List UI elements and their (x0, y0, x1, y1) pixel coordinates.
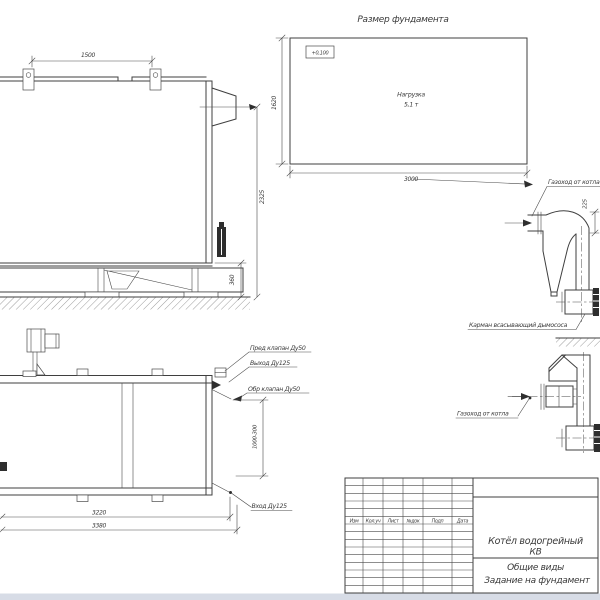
plan-lug-3 (77, 495, 88, 502)
leader-dot (529, 397, 532, 400)
boiler-plan-view: Пред клапан Ду50 Выход Ду125 Обр клапан … (0, 329, 311, 534)
duct-label: Газоход от котла (548, 179, 600, 186)
dim-body-length: 3220 (92, 510, 107, 517)
foundation-title: Размер фундамента (357, 15, 448, 25)
col-izm: Изм (350, 519, 360, 525)
outlet-marker (212, 381, 221, 390)
flue-duct-side-view: Газоход от котла 225 Карман всасывающий … (413, 179, 600, 347)
check-valve-arrow (233, 396, 242, 402)
dim-length-lines (0, 497, 240, 534)
lifting-lug-right (150, 69, 161, 90)
black-flange (593, 288, 599, 316)
burner-motor (45, 334, 59, 348)
plan-edges (0, 376, 212, 496)
col-koluch: Кол.уч (366, 519, 381, 525)
check-valve-leader (241, 393, 309, 397)
load-label: Нагрузка (397, 92, 425, 99)
doc-type-line2: Задание на фундамент (484, 576, 591, 586)
base-frame-supports (98, 268, 198, 292)
suction-pocket-outline (528, 211, 589, 296)
dim-frame-height: 360 (229, 274, 236, 285)
left-edge-fitting (0, 462, 7, 471)
bottom-black-flange (594, 424, 600, 452)
title-block-columns (363, 478, 452, 593)
plan-internal-lines (122, 383, 133, 488)
outlet-leader (229, 367, 297, 382)
axis-line (413, 179, 526, 184)
dim-nozzle-lines (233, 397, 268, 479)
plan-lug-4 (152, 495, 163, 502)
dim-lug-spacing: 1500 (81, 52, 96, 59)
product-name-line1: Котёл водогрейный (488, 536, 583, 547)
level-mark: +0,100 (312, 51, 329, 57)
boiler-drawing: 2325 1500 360 Размер фундамента +0,100 Н… (0, 0, 600, 600)
elbow-outline (549, 355, 590, 381)
flue-duct-front-view: Газоход от котла (456, 352, 600, 453)
check-valve-label: Обр клапан Ду50 (248, 385, 300, 393)
plan-lug-1 (77, 369, 88, 376)
dim-offset-lines (590, 209, 599, 236)
drawing-sheet: 2325 1500 360 Размер фундамента +0,100 Н… (0, 0, 600, 600)
duct-label-leader (532, 187, 600, 217)
pocket-label: Карман всасывающий дымососа (469, 322, 568, 329)
dim-overall-length: 3380 (92, 523, 107, 530)
col-data: Дата (456, 519, 469, 525)
col-podp: Подп (432, 519, 444, 525)
ground-hatch (0, 298, 250, 310)
drain-valve-cap (219, 222, 224, 227)
col-ndok: №док (406, 519, 420, 525)
dim-duct-offset: 225 (583, 198, 589, 208)
dim-foundation-depth: 1620 (271, 95, 278, 110)
title-block-rows (345, 486, 473, 586)
foot-plate-right (184, 292, 218, 297)
burner-bracket (37, 364, 45, 375)
lifting-lug-left (23, 69, 34, 90)
duct-ground-hatch (556, 339, 600, 347)
dim-foundation-width: 3000 (404, 176, 419, 183)
front-duct-label: Газоход от котла (457, 411, 509, 418)
foundation-plan: Размер фундамента +0,100 Нагрузка 5,1 т … (271, 15, 530, 183)
load-value: 5,1 т (404, 102, 419, 109)
col-list: Лист (387, 519, 399, 525)
dim-nozzle-offset: 1000-300 (253, 424, 259, 449)
safety-valve-label: Пред клапан Ду50 (250, 345, 306, 352)
dim-boiler-height: 2325 (259, 189, 266, 204)
inlet-arrow (523, 220, 532, 227)
window-bottom-strip (0, 594, 600, 600)
foot-plate-left (85, 292, 119, 297)
centerline-arrow (249, 104, 257, 110)
title-block: Изм Кол.уч Лист №док Подп Дата Котёл вод… (345, 478, 598, 593)
doc-type-line1: Общие виды (507, 563, 564, 573)
product-name-line2: КВ (530, 548, 542, 558)
burner-body (27, 329, 45, 352)
inlet-diagonal (212, 483, 229, 492)
front-inlet-arrow (521, 393, 530, 400)
boiler-side-view: 2325 1500 360 (0, 52, 266, 310)
axis-arrow (524, 181, 533, 188)
boiler-body-lines (0, 81, 212, 266)
inlet-label: Вход Ду125 (252, 503, 288, 510)
plan-lug-2 (152, 369, 163, 376)
inlet-dot (229, 491, 232, 494)
burner-base-plate (23, 371, 36, 377)
outlet-diagonal (212, 390, 231, 400)
base-frame (0, 268, 243, 292)
outlet-label: Выход Ду125 (250, 360, 290, 367)
